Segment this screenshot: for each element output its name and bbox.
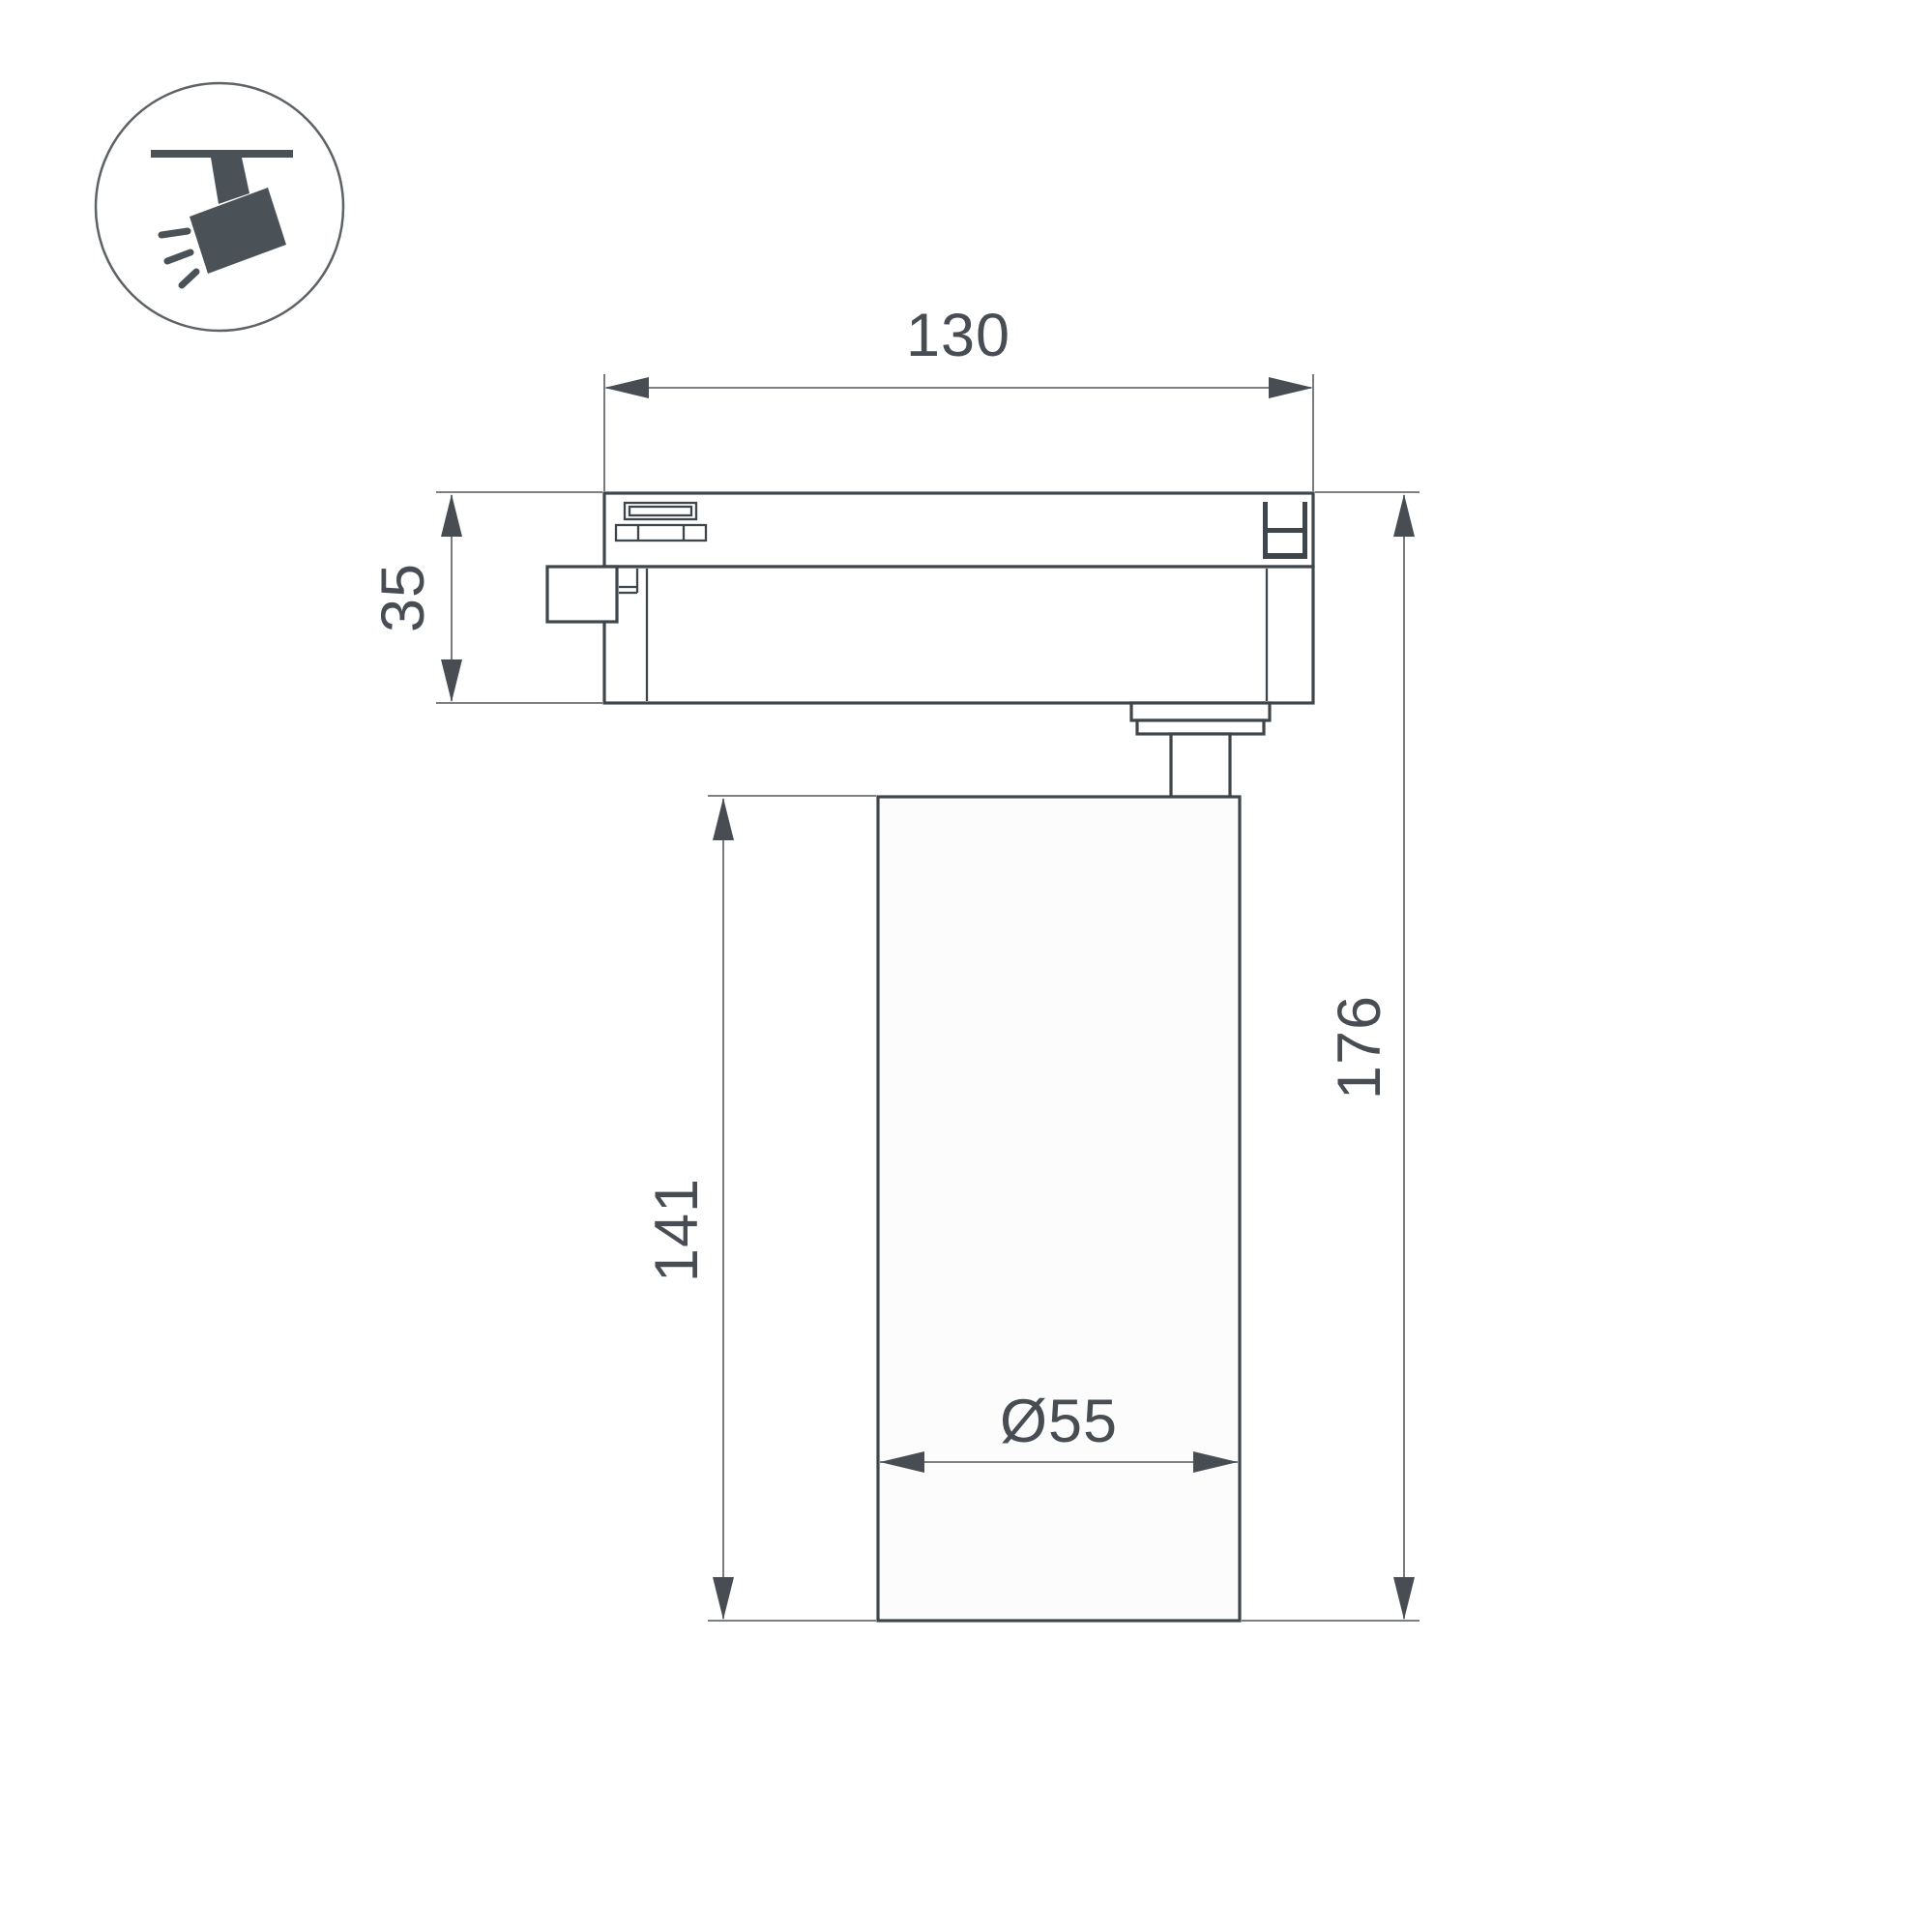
dimension-body-height: 141	[643, 796, 876, 1621]
ceiling-track-icon	[151, 150, 293, 158]
arrowhead-up	[441, 494, 462, 537]
clip-left-wall	[1263, 502, 1268, 559]
track-adapter-lower-outline	[604, 567, 1313, 703]
dimension-label: 130	[906, 302, 1010, 369]
lamp-body-outline	[878, 797, 1240, 1621]
release-latch	[547, 567, 617, 622]
dimension-label: 176	[1326, 995, 1393, 1099]
track-light-badge	[96, 83, 343, 331]
dimension-drawing: 130 35 141 176 Ø55	[0, 0, 1932, 1932]
arrowhead-up	[713, 798, 734, 840]
fixture-drawing	[547, 493, 1313, 1621]
dimension-label: 141	[643, 1178, 711, 1282]
dimension-label: 35	[369, 563, 437, 632]
arrowhead-down	[1393, 1577, 1415, 1620]
swivel-stem	[1171, 734, 1230, 797]
clip-bottom-bar	[1263, 553, 1307, 559]
clip-middle-rung	[1268, 528, 1303, 533]
swivel-plate-upper	[1131, 703, 1270, 720]
track-adapter-upper-outline	[604, 493, 1313, 567]
dimension-label: Ø55	[1000, 1388, 1118, 1455]
clip-right-wall	[1303, 502, 1307, 559]
arrowhead-down	[441, 659, 462, 702]
arrowhead-down	[713, 1577, 734, 1620]
arrowhead-right	[1269, 377, 1313, 398]
arrowhead-left	[604, 377, 649, 398]
dimension-track-width: 130	[604, 302, 1313, 491]
swivel-plate-lower	[1137, 720, 1264, 734]
arrowhead-up	[1393, 494, 1415, 537]
